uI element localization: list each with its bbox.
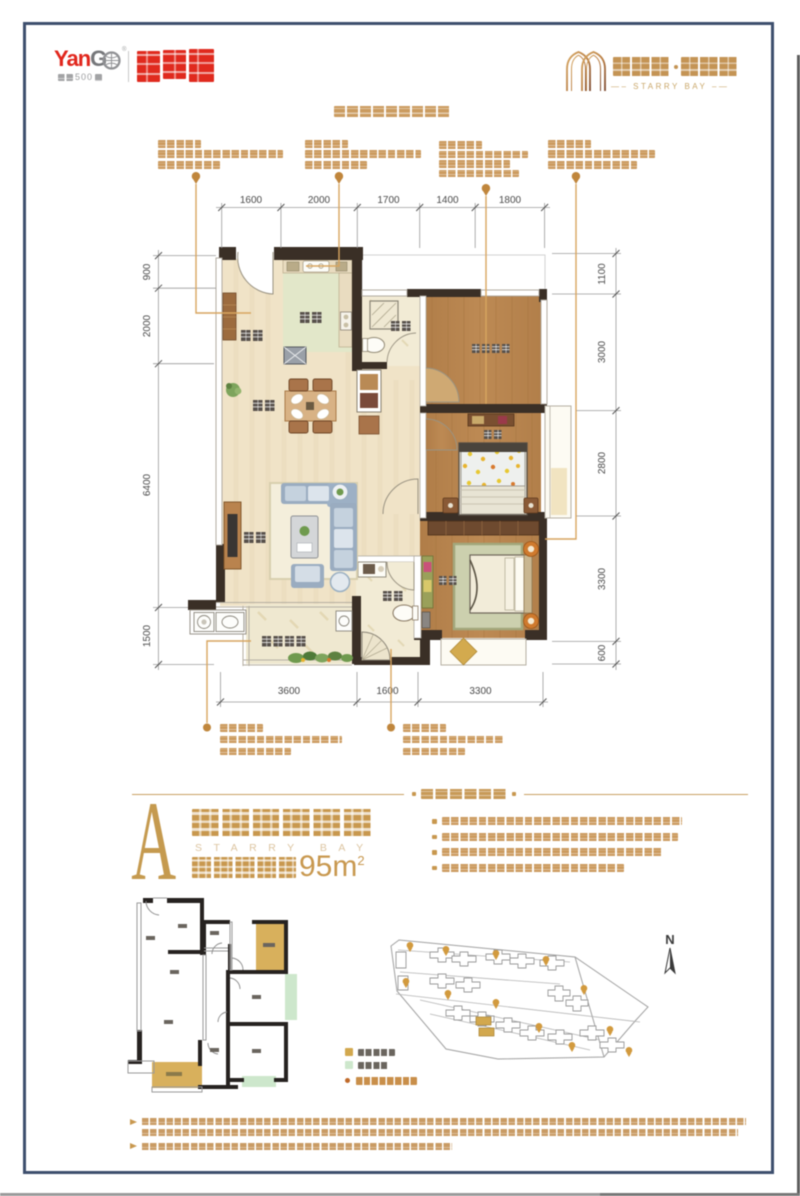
- svg-text:2000: 2000: [308, 195, 331, 206]
- svg-text:900: 900: [142, 263, 153, 280]
- svg-text:1400: 1400: [436, 195, 459, 206]
- svg-text:600: 600: [597, 644, 608, 661]
- svg-text:3000: 3000: [597, 340, 608, 363]
- svg-text:2000: 2000: [142, 314, 153, 337]
- svg-text:6400: 6400: [142, 473, 153, 496]
- svg-text:3300: 3300: [469, 686, 492, 697]
- svg-text:2800: 2800: [597, 451, 608, 474]
- svg-text:1100: 1100: [597, 263, 608, 285]
- svg-text:1800: 1800: [499, 195, 522, 206]
- svg-text:1600: 1600: [376, 686, 399, 697]
- svg-text:1500: 1500: [142, 624, 153, 647]
- svg-text:1600: 1600: [240, 195, 263, 206]
- svg-text:3300: 3300: [597, 567, 608, 590]
- svg-text:1700: 1700: [377, 195, 400, 206]
- svg-text:3600: 3600: [278, 686, 301, 697]
